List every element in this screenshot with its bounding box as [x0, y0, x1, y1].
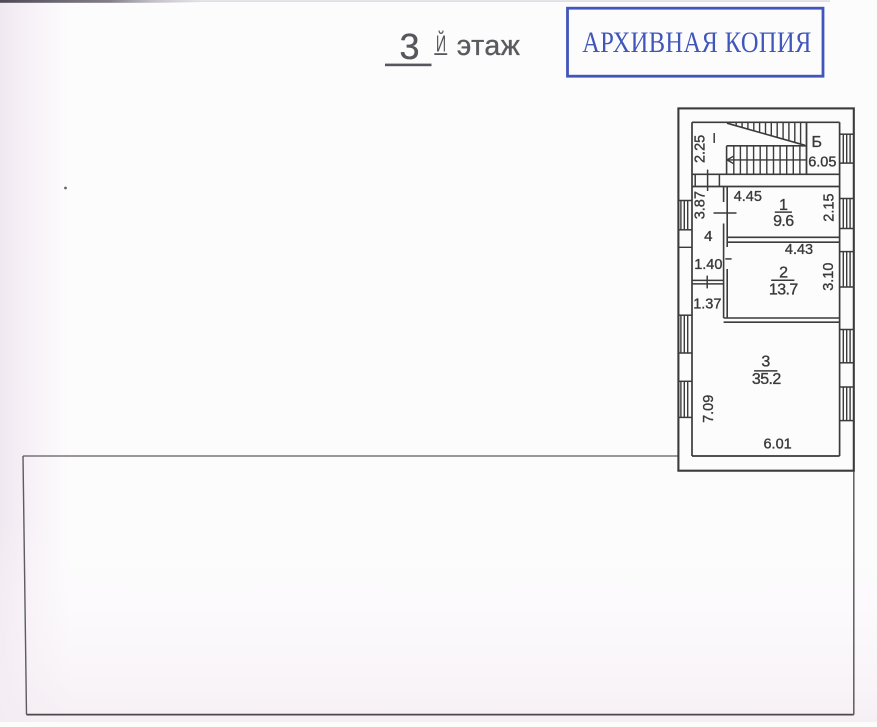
svg-text:13.7: 13.7: [769, 281, 798, 298]
svg-text:6.05: 6.05: [808, 154, 836, 170]
svg-text:1: 1: [779, 197, 788, 214]
svg-text:35.2: 35.2: [752, 371, 781, 388]
svg-text:4: 4: [704, 228, 712, 245]
svg-text:6.01: 6.01: [763, 436, 791, 452]
svg-text:3: 3: [761, 354, 770, 371]
svg-text:АРХИВНАЯ КОПИЯ: АРХИВНАЯ КОПИЯ: [582, 26, 812, 59]
svg-text:этаж: этаж: [457, 30, 521, 62]
svg-text:2.15: 2.15: [822, 193, 838, 221]
svg-text:3: 3: [399, 26, 419, 67]
svg-text:3.87: 3.87: [693, 191, 709, 219]
svg-text:2: 2: [779, 264, 788, 281]
svg-text:Б: Б: [812, 134, 823, 151]
svg-text:2.25: 2.25: [693, 135, 709, 163]
svg-text:4.43: 4.43: [785, 242, 813, 258]
svg-text:4.45: 4.45: [734, 189, 762, 205]
svg-text:9.6: 9.6: [773, 213, 794, 230]
svg-text:7.09: 7.09: [701, 395, 717, 423]
svg-text:1.40: 1.40: [694, 257, 722, 273]
svg-text:3.10: 3.10: [821, 263, 837, 291]
svg-text:1.37: 1.37: [693, 297, 721, 313]
